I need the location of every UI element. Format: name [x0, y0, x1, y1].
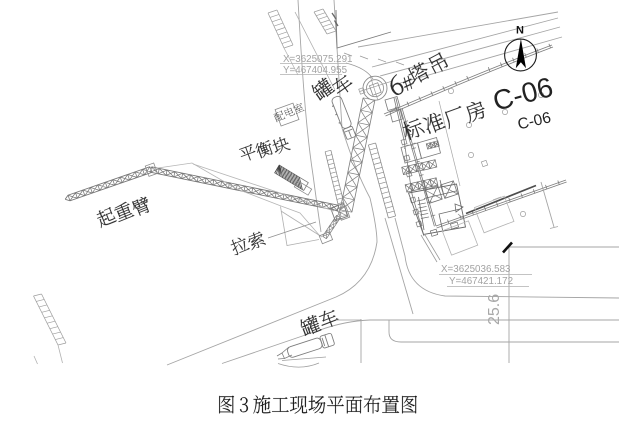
svg-text:25.6: 25.6: [486, 294, 503, 325]
svg-text:X=3625036.583: X=3625036.583: [441, 264, 511, 275]
svg-text:N: N: [516, 25, 524, 37]
svg-text:Y=467421.172: Y=467421.172: [449, 276, 513, 287]
